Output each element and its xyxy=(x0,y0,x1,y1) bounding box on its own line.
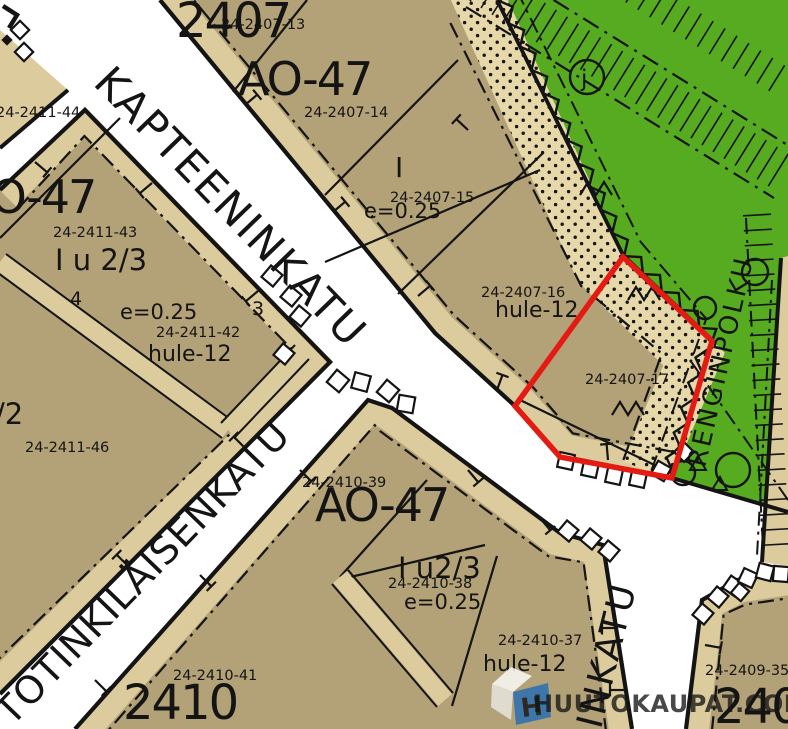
boundary-marker xyxy=(773,566,788,582)
stormwater-2411: hule-12 xyxy=(148,342,231,367)
boundary-marker xyxy=(327,370,350,393)
block-number-2410: 2410 xyxy=(123,675,237,729)
boundary-tick xyxy=(600,443,613,444)
site-number-4: 4 xyxy=(70,288,82,310)
parcel-id-24-2411-42: 24-2411-42 xyxy=(156,325,240,341)
efficiency-2411: e=0.25 xyxy=(120,300,197,324)
parcel-id-24-2410-37: 24-2410-37 xyxy=(498,633,582,649)
zone-code-2411: AO-47 xyxy=(0,170,95,224)
boundary-marker xyxy=(351,372,371,392)
parcel-id-24-2409-35: 24-2409-35 xyxy=(705,663,788,679)
boundary-marker xyxy=(377,380,400,403)
zone-code-2410: AO-47 xyxy=(315,478,448,532)
corner-verge-area xyxy=(0,30,68,148)
zoning-map: j 2407 24-2407-13 AO-47 24-2407-14 I 24-… xyxy=(0,0,788,729)
path-marker-label: j xyxy=(580,66,587,92)
floors-partial-2411: /2 xyxy=(0,397,23,431)
boundary-marker xyxy=(756,563,774,581)
parcel-id-24-2407-17: 24-2407-17 xyxy=(585,372,669,388)
floors-2411: I u 2/3 xyxy=(55,243,147,277)
zone-code-2407: AO-47 xyxy=(238,52,371,106)
parcel-id-24-2411-46: 24-2411-46 xyxy=(25,440,109,456)
site-number-3: 3 xyxy=(252,298,264,320)
boundary-tick xyxy=(95,680,106,691)
efficiency-2410: e=0.25 xyxy=(404,590,481,614)
boundary-marker xyxy=(397,395,416,414)
parcel-id-24-2411-43: 24-2411-43 xyxy=(53,225,137,241)
parcel-id-24-2407-13: 24-2407-13 xyxy=(221,17,305,33)
boundary-tick xyxy=(607,444,608,460)
stormwater-2407: hule-12 xyxy=(495,298,578,323)
efficiency-2407: e=0.25 xyxy=(364,199,441,223)
zoning-map-viewport: j 2407 24-2407-13 AO-47 24-2407-14 I 24-… xyxy=(0,0,788,729)
floors-marker-2407: I xyxy=(395,151,403,184)
parcel-id-24-2411-44: 24-2411-44 xyxy=(0,105,80,121)
parcel-id-24-2407-14: 24-2407-14 xyxy=(304,105,388,121)
